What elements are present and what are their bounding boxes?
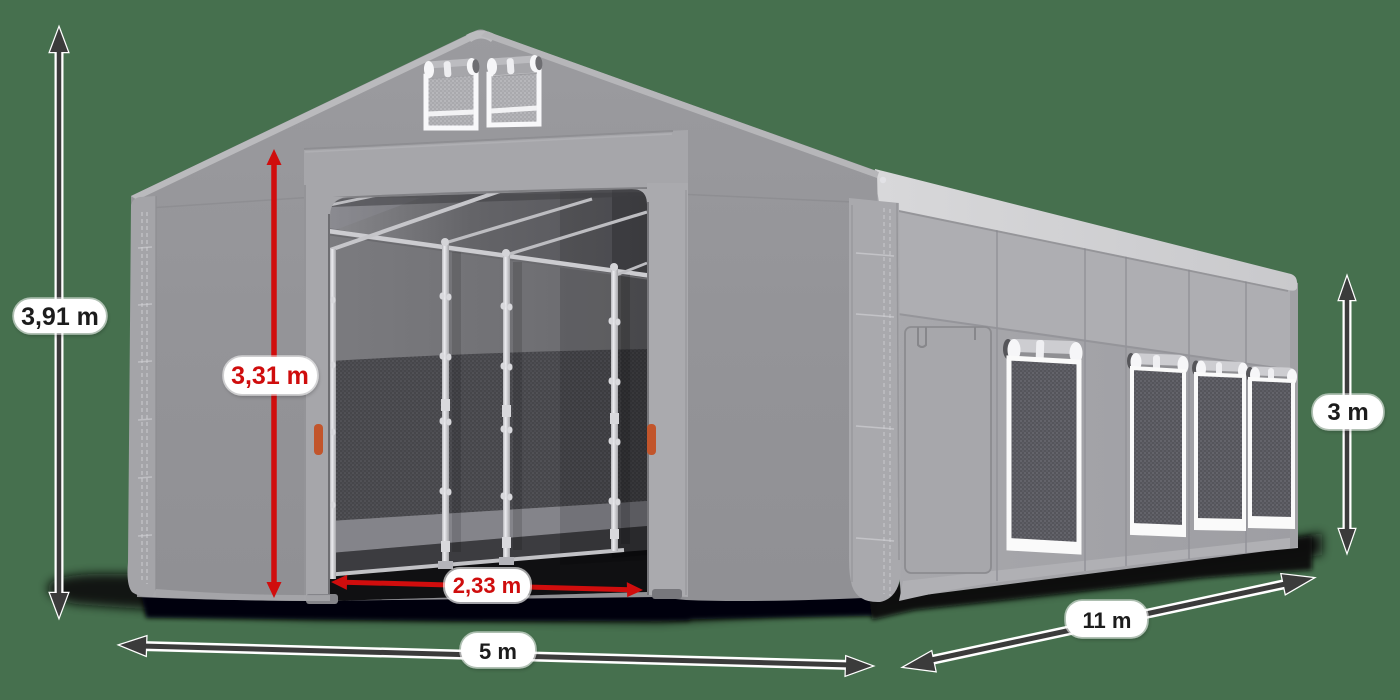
svg-text:3,31 m: 3,31 m	[231, 362, 309, 390]
svg-text:3,91 m: 3,91 m	[21, 303, 99, 331]
svg-text:11 m: 11 m	[1083, 608, 1132, 633]
svg-text:5 m: 5 m	[479, 639, 517, 664]
svg-text:2,33 m: 2,33 m	[453, 573, 522, 598]
svg-text:3 m: 3 m	[1327, 399, 1368, 426]
